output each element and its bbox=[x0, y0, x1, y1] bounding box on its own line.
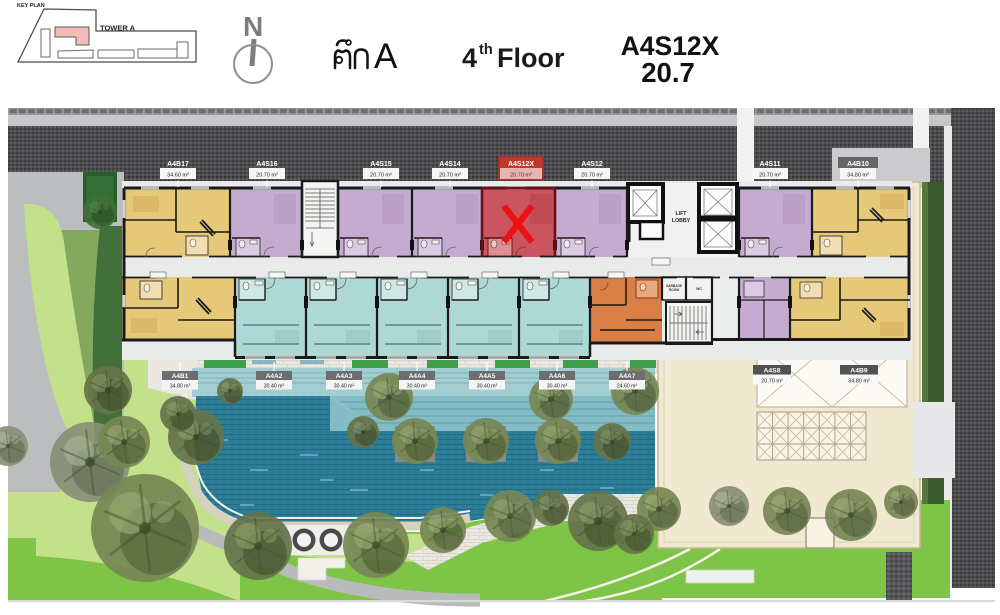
svg-text:A4S8: A4S8 bbox=[763, 368, 780, 375]
svg-text:34.80 m²: 34.80 m² bbox=[847, 173, 869, 179]
svg-text:A4S15: A4S15 bbox=[370, 161, 392, 168]
svg-text:LIFT: LIFT bbox=[676, 211, 688, 217]
svg-text:20.70 m²: 20.70 m² bbox=[510, 173, 532, 179]
svg-text:A4S12X: A4S12X bbox=[508, 161, 534, 168]
svg-text:4: 4 bbox=[462, 43, 477, 73]
svg-text:20.70 m²: 20.70 m² bbox=[581, 173, 603, 179]
svg-text:30.40 m²: 30.40 m² bbox=[264, 384, 285, 390]
svg-text:30.40 m²: 30.40 m² bbox=[407, 384, 428, 390]
svg-text:A4A2: A4A2 bbox=[266, 373, 283, 380]
svg-text:20.7: 20.7 bbox=[641, 57, 695, 88]
svg-text:A: A bbox=[374, 37, 398, 76]
svg-text:30.40 m²: 30.40 m² bbox=[547, 384, 568, 390]
svg-text:30.40 m²: 30.40 m² bbox=[334, 384, 355, 390]
svg-text:A4B9: A4B9 bbox=[850, 368, 868, 375]
svg-text:ROOM: ROOM bbox=[669, 288, 679, 292]
svg-text:N: N bbox=[243, 11, 263, 42]
svg-text:A4S11: A4S11 bbox=[759, 161, 780, 168]
svg-text:A4A5: A4A5 bbox=[479, 373, 496, 380]
svg-text:A4B1: A4B1 bbox=[172, 373, 189, 380]
svg-text:20.70 m²: 20.70 m² bbox=[761, 379, 783, 385]
svg-text:20.70 m²: 20.70 m² bbox=[370, 173, 392, 179]
svg-text:20.70 m²: 20.70 m² bbox=[439, 173, 461, 179]
svg-text:20.70 m²: 20.70 m² bbox=[256, 173, 278, 179]
svg-text:24.60 m²: 24.60 m² bbox=[617, 384, 638, 390]
svg-text:TOWER A: TOWER A bbox=[100, 24, 136, 33]
svg-text:A4B10: A4B10 bbox=[847, 161, 869, 168]
svg-text:34.60 m²: 34.60 m² bbox=[167, 173, 189, 179]
svg-text:A4S12: A4S12 bbox=[581, 161, 603, 168]
svg-text:A4S14: A4S14 bbox=[439, 161, 461, 168]
svg-text:30.40 m²: 30.40 m² bbox=[477, 384, 498, 390]
svg-text:34.80 m²: 34.80 m² bbox=[848, 379, 870, 385]
svg-text:A4B17: A4B17 bbox=[167, 161, 189, 168]
svg-text:34.80 m²: 34.80 m² bbox=[170, 384, 191, 390]
svg-text:Floor: Floor bbox=[497, 43, 565, 73]
svg-text:A4S16: A4S16 bbox=[256, 161, 278, 168]
svg-text:WC: WC bbox=[696, 287, 702, 291]
svg-text:LOBBY: LOBBY bbox=[672, 218, 691, 224]
svg-text:KEY PLAN: KEY PLAN bbox=[17, 3, 45, 9]
svg-text:A4A3: A4A3 bbox=[336, 373, 353, 380]
svg-text:A4A7: A4A7 bbox=[619, 373, 636, 380]
svg-text:20.70 m²: 20.70 m² bbox=[759, 173, 781, 179]
svg-text:th: th bbox=[479, 42, 493, 58]
svg-text:A4A4: A4A4 bbox=[409, 373, 426, 380]
svg-text:A4A6: A4A6 bbox=[549, 373, 566, 380]
